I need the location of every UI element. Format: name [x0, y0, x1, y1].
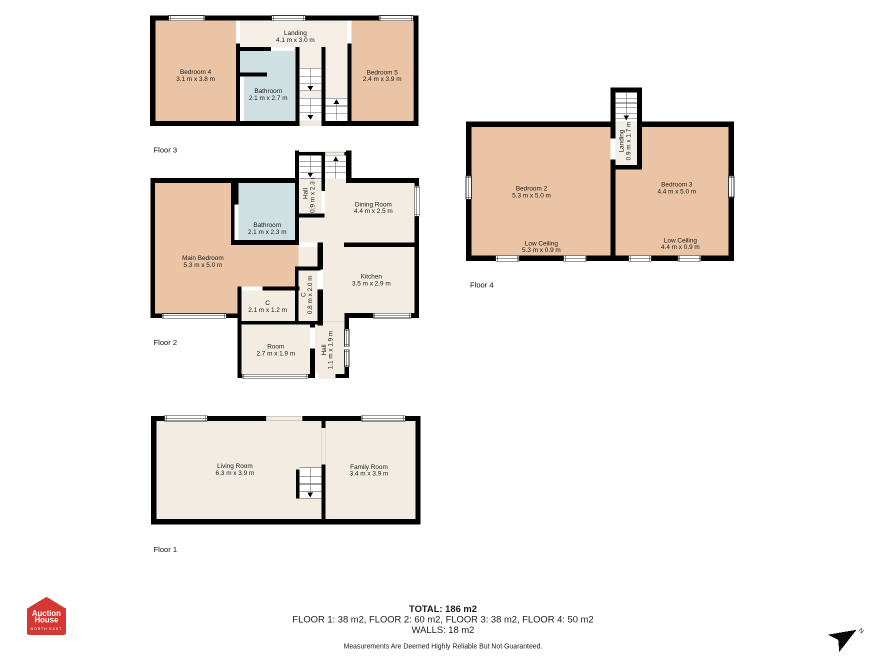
- svg-text:1.1 m x 1.9 m: 1.1 m x 1.9 m: [328, 331, 335, 370]
- svg-text:Floor 4: Floor 4: [470, 281, 494, 290]
- svg-text:4.4 m x 2.5 m: 4.4 m x 2.5 m: [354, 208, 393, 215]
- svg-text:2.4 m x 3.9 m: 2.4 m x 3.9 m: [363, 76, 402, 83]
- svg-text:4.4 m x 0.9 m: 4.4 m x 0.9 m: [661, 244, 700, 251]
- svg-text:5.3 m x 5.0 m: 5.3 m x 5.0 m: [512, 192, 551, 199]
- svg-text:Measurements Are Deemed Highly: Measurements Are Deemed Highly Reliable …: [344, 644, 543, 651]
- svg-text:6.3 m x 3.9 m: 6.3 m x 3.9 m: [216, 470, 255, 477]
- svg-text:4.1 m x 3.0 m: 4.1 m x 3.0 m: [276, 37, 315, 44]
- svg-text:WALLS: 18 m2: WALLS: 18 m2: [412, 624, 475, 635]
- svg-text:FLOOR 1: 38 m2, FLOOR 2: 60 m2: FLOOR 1: 38 m2, FLOOR 2: 60 m2, FLOOR 3:…: [292, 613, 593, 624]
- svg-text:5.3 m x 0.9 m: 5.3 m x 0.9 m: [522, 247, 561, 254]
- svg-text:0.9 m x 2.3 m: 0.9 m x 2.3 m: [309, 174, 316, 213]
- svg-text:3.4 m x 3.9 m: 3.4 m x 3.9 m: [350, 471, 389, 478]
- svg-text:Floor 1: Floor 1: [154, 545, 178, 554]
- svg-text:0.9 m x 1.7 m: 0.9 m x 1.7 m: [625, 122, 632, 161]
- svg-text:4.4 m x 5.0 m: 4.4 m x 5.0 m: [657, 188, 696, 195]
- svg-text:Floor 2: Floor 2: [154, 338, 178, 347]
- svg-text:3.1 m x 3.8 m: 3.1 m x 3.8 m: [176, 76, 215, 83]
- svg-text:2.1 m x 2.3 m: 2.1 m x 2.3 m: [248, 229, 287, 236]
- svg-text:Floor 3: Floor 3: [154, 146, 178, 155]
- svg-text:2.7 m x 1.9 m: 2.7 m x 1.9 m: [256, 350, 295, 357]
- svg-text:5.3 m x 5.0 m: 5.3 m x 5.0 m: [184, 262, 223, 269]
- svg-text:NORTH EAST: NORTH EAST: [31, 627, 63, 631]
- svg-text:0.8 m x 2.0 m: 0.8 m x 2.0 m: [307, 275, 314, 314]
- svg-text:2.1 m x 2.7 m: 2.1 m x 2.7 m: [249, 95, 288, 102]
- svg-text:2.1 m x 1.2 m: 2.1 m x 1.2 m: [248, 307, 287, 314]
- svg-text:3.5 m x 2.9 m: 3.5 m x 2.9 m: [352, 280, 391, 287]
- svg-text:House: House: [34, 616, 58, 625]
